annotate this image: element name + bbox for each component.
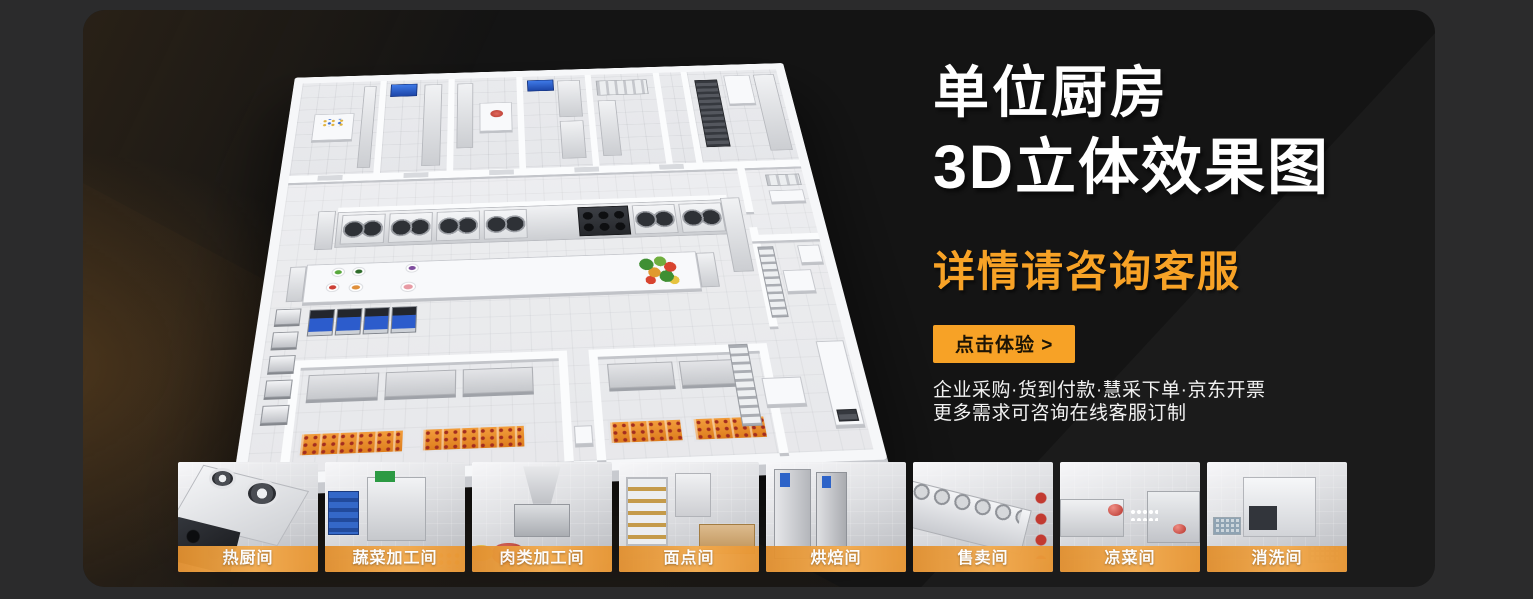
steamer-unit	[363, 307, 390, 334]
counter	[769, 189, 806, 202]
door-box	[574, 425, 594, 444]
worktable	[761, 377, 806, 406]
worktable	[311, 113, 354, 141]
counter	[456, 83, 473, 148]
trolley	[260, 405, 290, 424]
thumbnail-cold-dish[interactable]: 凉菜间	[1060, 462, 1200, 572]
note-line1: 企业采购·货到付款·慧采下单·京东开票	[933, 379, 1435, 402]
door-opening	[574, 167, 599, 173]
thumbnail-washing[interactable]: 消洗间	[1207, 462, 1347, 572]
thumbnail-vegetable-processing[interactable]: 蔬菜加工间	[325, 462, 465, 572]
worktable	[783, 269, 817, 292]
thumbnail-label: 热厨间	[178, 546, 318, 572]
dishwasher-opening-shape	[1249, 506, 1277, 530]
wok-station	[678, 202, 726, 232]
wok-station	[632, 204, 679, 234]
wall	[516, 77, 526, 169]
grinder-hopper-shape	[520, 466, 565, 503]
cabinet	[723, 75, 756, 104]
room-thumbnails: 热厨间 蔬菜加工间 肉类加工间	[178, 462, 1358, 572]
dish-basket-shape	[1213, 517, 1241, 535]
wok-burner-shape	[245, 480, 279, 507]
trolley	[271, 331, 299, 348]
food-display-warmer	[608, 418, 686, 446]
banner-card: 单位厨房 3D立体效果图 详情请咨询客服 点击体验 > 企业采购·货到付款·慧采…	[83, 10, 1435, 587]
steamer-unit	[390, 306, 417, 333]
counter	[421, 84, 442, 166]
blue-crates-shape	[328, 491, 359, 535]
counter	[598, 100, 622, 156]
wok-station	[436, 211, 480, 242]
wok-station	[484, 209, 528, 240]
kitchen-3d-floorplan	[225, 20, 895, 450]
floorplan-floor	[232, 63, 887, 486]
thumbnail-baking[interactable]: 烘焙间	[766, 462, 906, 572]
wok-station	[388, 212, 433, 243]
oven-cabinet-shape	[816, 472, 847, 547]
trolley	[274, 308, 302, 325]
grinder-body-shape	[514, 504, 570, 537]
shelf-rack	[765, 174, 802, 187]
control-screen-shape	[822, 476, 831, 488]
door-opening	[317, 175, 342, 181]
bottles-shape	[1130, 508, 1158, 521]
control-screen-shape	[780, 473, 790, 487]
food-items	[320, 119, 347, 128]
door-opening	[489, 169, 514, 175]
range-station	[577, 206, 631, 237]
cabinet	[797, 245, 823, 263]
thumbnail-label: 烘焙间	[766, 546, 906, 572]
thumbnail-label: 面点间	[619, 546, 759, 572]
fryer-unit	[527, 80, 554, 92]
fryer-unit	[390, 84, 417, 97]
steamer-unit	[335, 308, 363, 335]
subtitle: 详情请咨询客服	[933, 238, 1435, 299]
thumbnail-label: 售卖间	[913, 546, 1053, 572]
food-display-warmer	[297, 428, 405, 457]
door-opening	[403, 172, 428, 178]
prep-counter	[463, 367, 534, 395]
thumbnail-label: 凉菜间	[1060, 546, 1200, 572]
thumbnail-label: 消洗间	[1207, 546, 1347, 572]
trolley	[267, 355, 296, 373]
counter	[560, 120, 587, 158]
cooler-vent	[836, 409, 859, 422]
thumbnail-label: 蔬菜加工间	[325, 546, 465, 572]
cutter-machine-shape	[367, 477, 426, 541]
red-dome-shape	[1173, 524, 1186, 534]
counter	[557, 80, 583, 117]
prep-counter	[306, 372, 379, 400]
vegetable-pile	[634, 253, 685, 287]
thumbnail-hot-kitchen[interactable]: 热厨间	[178, 462, 318, 572]
wok-burner-shape	[209, 468, 236, 489]
page-background: 单位厨房 3D立体效果图 详情请咨询客服 点击体验 > 企业采购·货到付款·慧采…	[0, 0, 1533, 599]
page-title-line2: 3D立体效果图	[933, 137, 1435, 198]
counter	[753, 74, 793, 150]
page-title-line1: 单位厨房	[933, 65, 1435, 121]
door-opening	[659, 164, 684, 170]
wok-station	[340, 214, 386, 245]
cta-button[interactable]: 点击体验 >	[933, 325, 1075, 363]
thumbnail-serving[interactable]: 售卖间	[913, 462, 1053, 572]
hero-text-block: 单位厨房 3D立体效果图 详情请咨询客服 点击体验 > 企业采购·货到付款·慧采…	[933, 65, 1435, 425]
food-display-warmer	[420, 424, 526, 453]
shelf-rack	[596, 79, 649, 95]
thumbnail-label: 肉类加工间	[472, 546, 612, 572]
steel-cabinet-shape	[675, 473, 711, 517]
prep-counter	[607, 361, 675, 388]
thumbnail-meat-processing[interactable]: 肉类加工间	[472, 462, 612, 572]
machine-screen-shape	[375, 471, 395, 482]
proofer-oven-shape	[626, 477, 668, 545]
thumbnail-pastry[interactable]: 面点间	[619, 462, 759, 572]
trolley	[264, 380, 293, 398]
red-dome-shape	[1108, 504, 1123, 516]
steamer-unit	[307, 309, 335, 336]
prep-counter	[384, 370, 456, 398]
wall	[653, 73, 673, 164]
note-line2: 更多需求可咨询在线客服订制	[933, 402, 1435, 425]
wall	[447, 79, 455, 171]
